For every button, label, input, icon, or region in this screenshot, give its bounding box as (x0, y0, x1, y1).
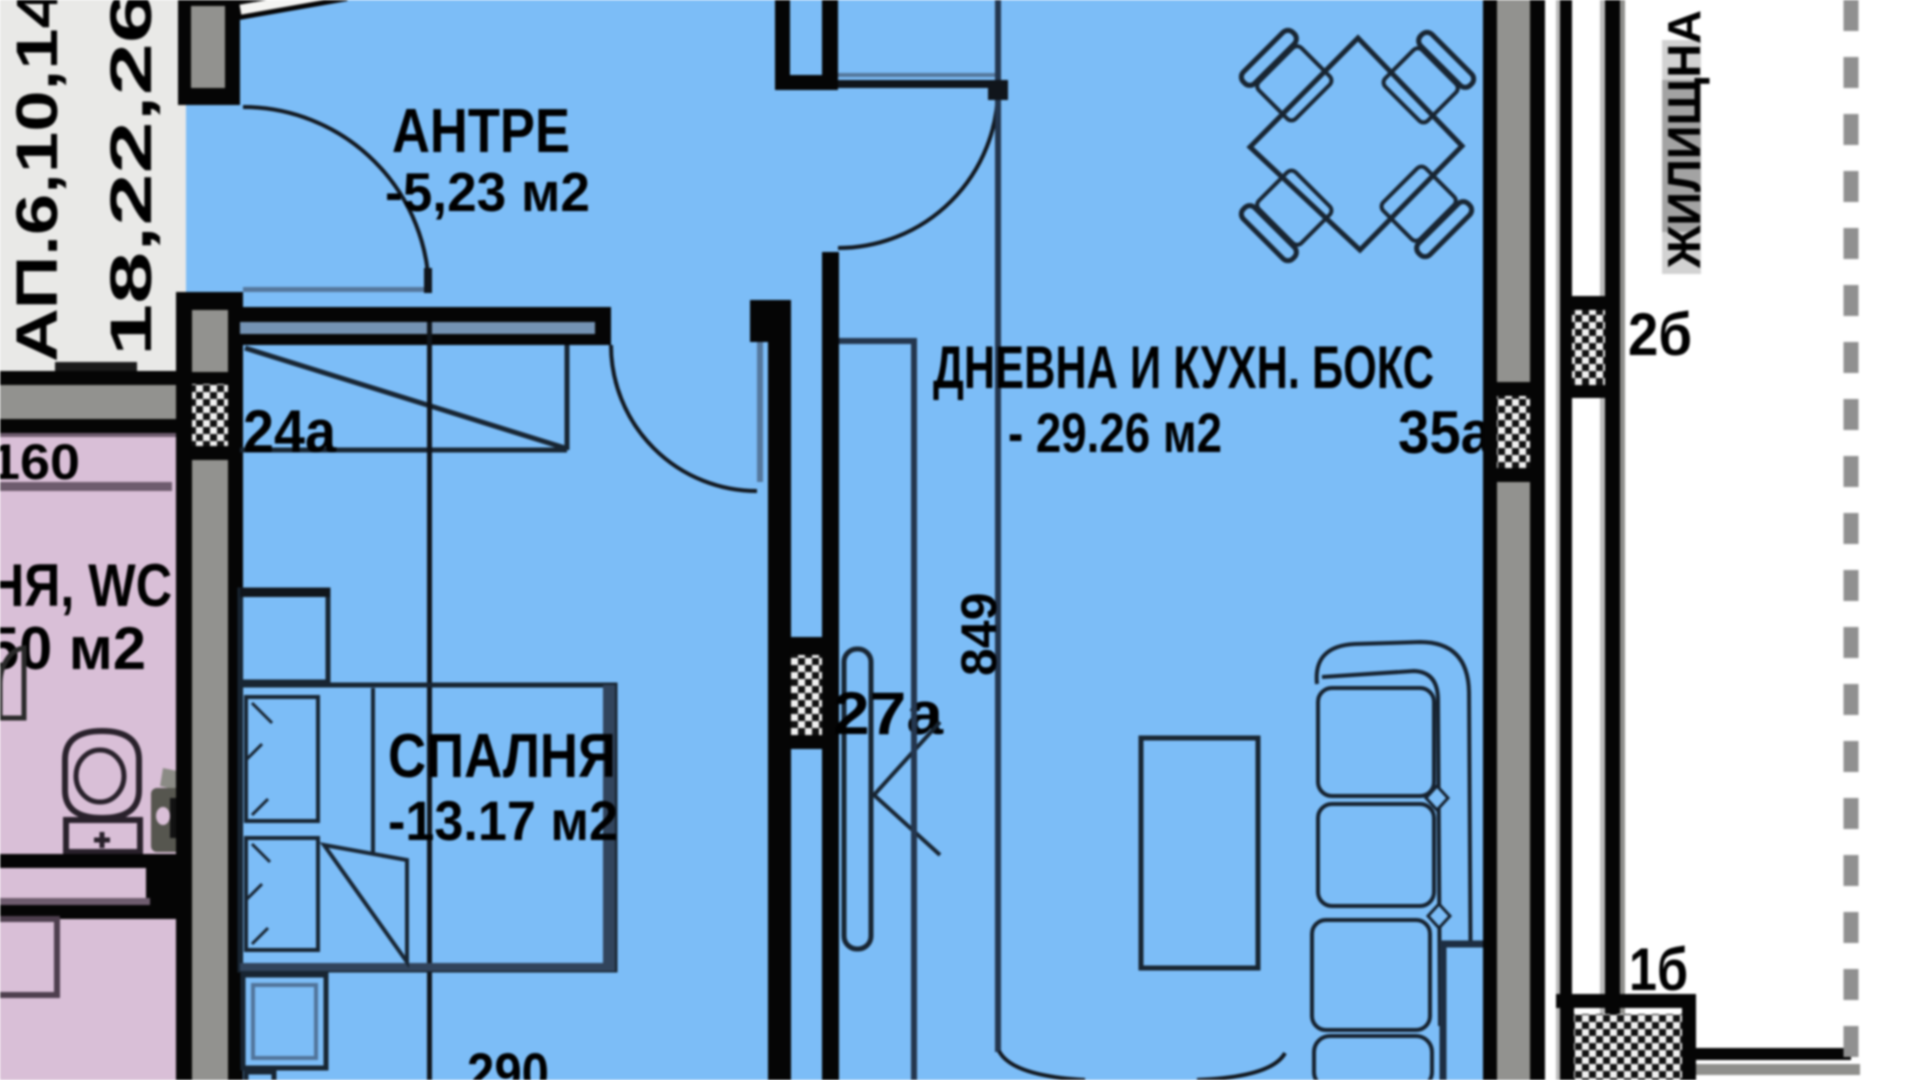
svg-text:18,22,26: 18,22,26 (99, 0, 164, 356)
svg-text:1б: 1б (1629, 936, 1688, 1003)
svg-text:849: 849 (951, 593, 1007, 676)
svg-text:ДНЕВНА И КУХН. БОКС: ДНЕВНА И КУХН. БОКС (933, 334, 1434, 401)
svg-text:2б: 2б (1628, 301, 1692, 368)
svg-text:24а: 24а (243, 398, 337, 465)
svg-text:-5,23 м2: -5,23 м2 (385, 161, 590, 223)
svg-text:СПАЛНЯ: СПАЛНЯ (388, 722, 616, 791)
svg-text:- 29.26 м2: - 29.26 м2 (1008, 401, 1222, 464)
svg-text:-13.17 м2: -13.17 м2 (388, 789, 618, 852)
svg-text:НЯ, WC: НЯ, WC (0, 552, 172, 619)
svg-text:АП.6,10,14: АП.6,10,14 (5, 0, 70, 362)
svg-text:ЖИЛИЩНА: ЖИЛИЩНА (1658, 10, 1710, 269)
svg-text:160: 160 (0, 434, 80, 490)
svg-text:35а: 35а (1398, 399, 1493, 466)
svg-text:АНТРЕ: АНТРЕ (392, 97, 570, 166)
svg-text:290: 290 (467, 1041, 549, 1080)
